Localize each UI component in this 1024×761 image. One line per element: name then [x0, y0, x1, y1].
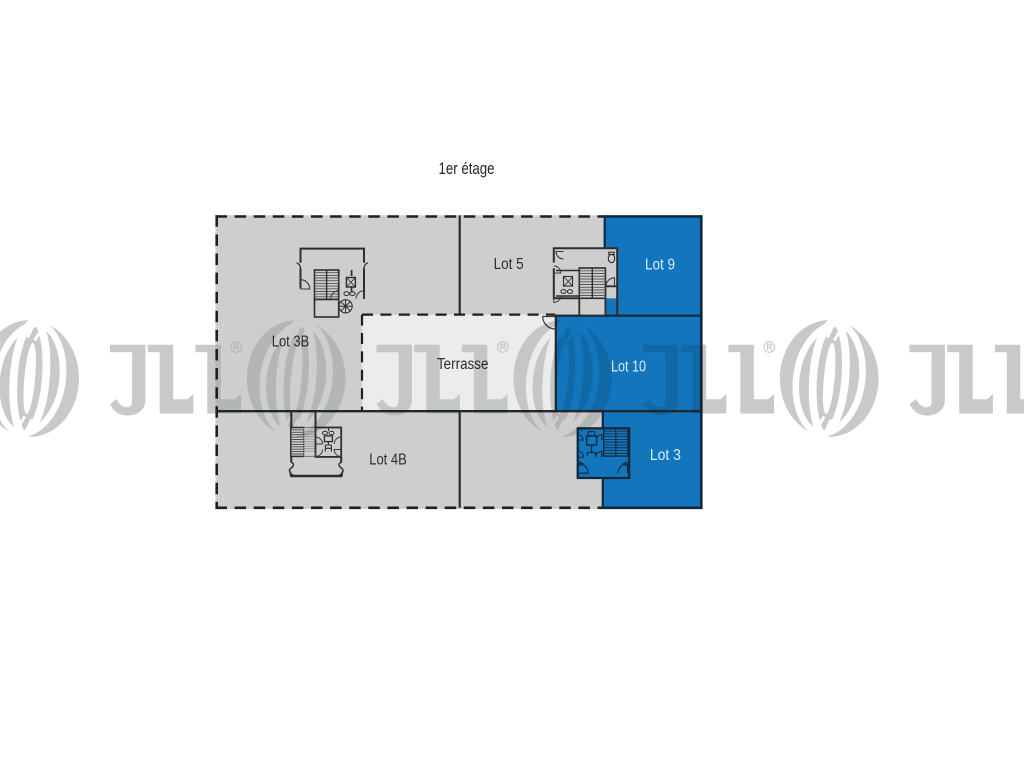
svg-text:Lot 4B: Lot 4B [369, 451, 407, 468]
svg-text:1er étage: 1er étage [439, 160, 495, 178]
svg-text:Lot 5: Lot 5 [494, 256, 524, 273]
svg-text:Lot 9: Lot 9 [645, 257, 675, 274]
svg-text:Lot 3: Lot 3 [650, 447, 681, 464]
svg-text:Lot 10: Lot 10 [611, 359, 646, 376]
